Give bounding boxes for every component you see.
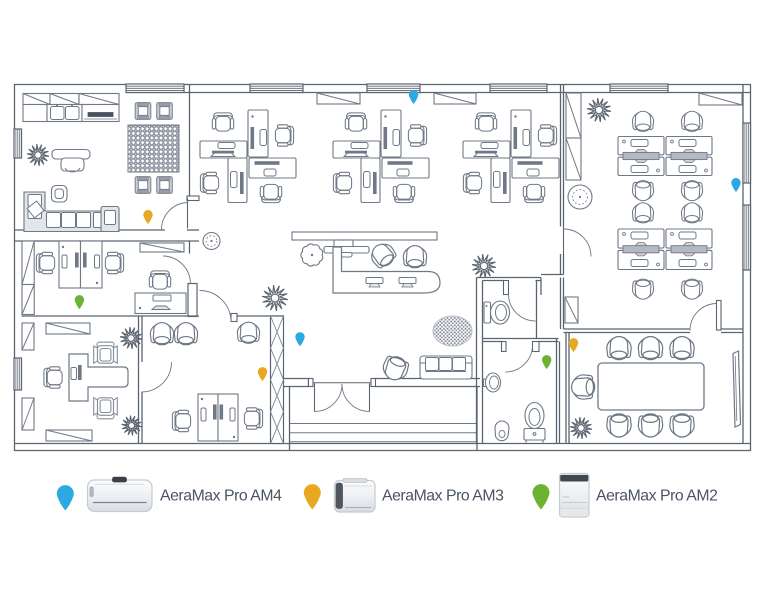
svg-text:AeraMax Pro AM2: AeraMax Pro AM2	[596, 488, 717, 505]
svg-text:AeraMax Pro AM4: AeraMax Pro AM4	[160, 488, 282, 505]
svg-text:AeraMax Pro AM3: AeraMax Pro AM3	[382, 488, 504, 505]
